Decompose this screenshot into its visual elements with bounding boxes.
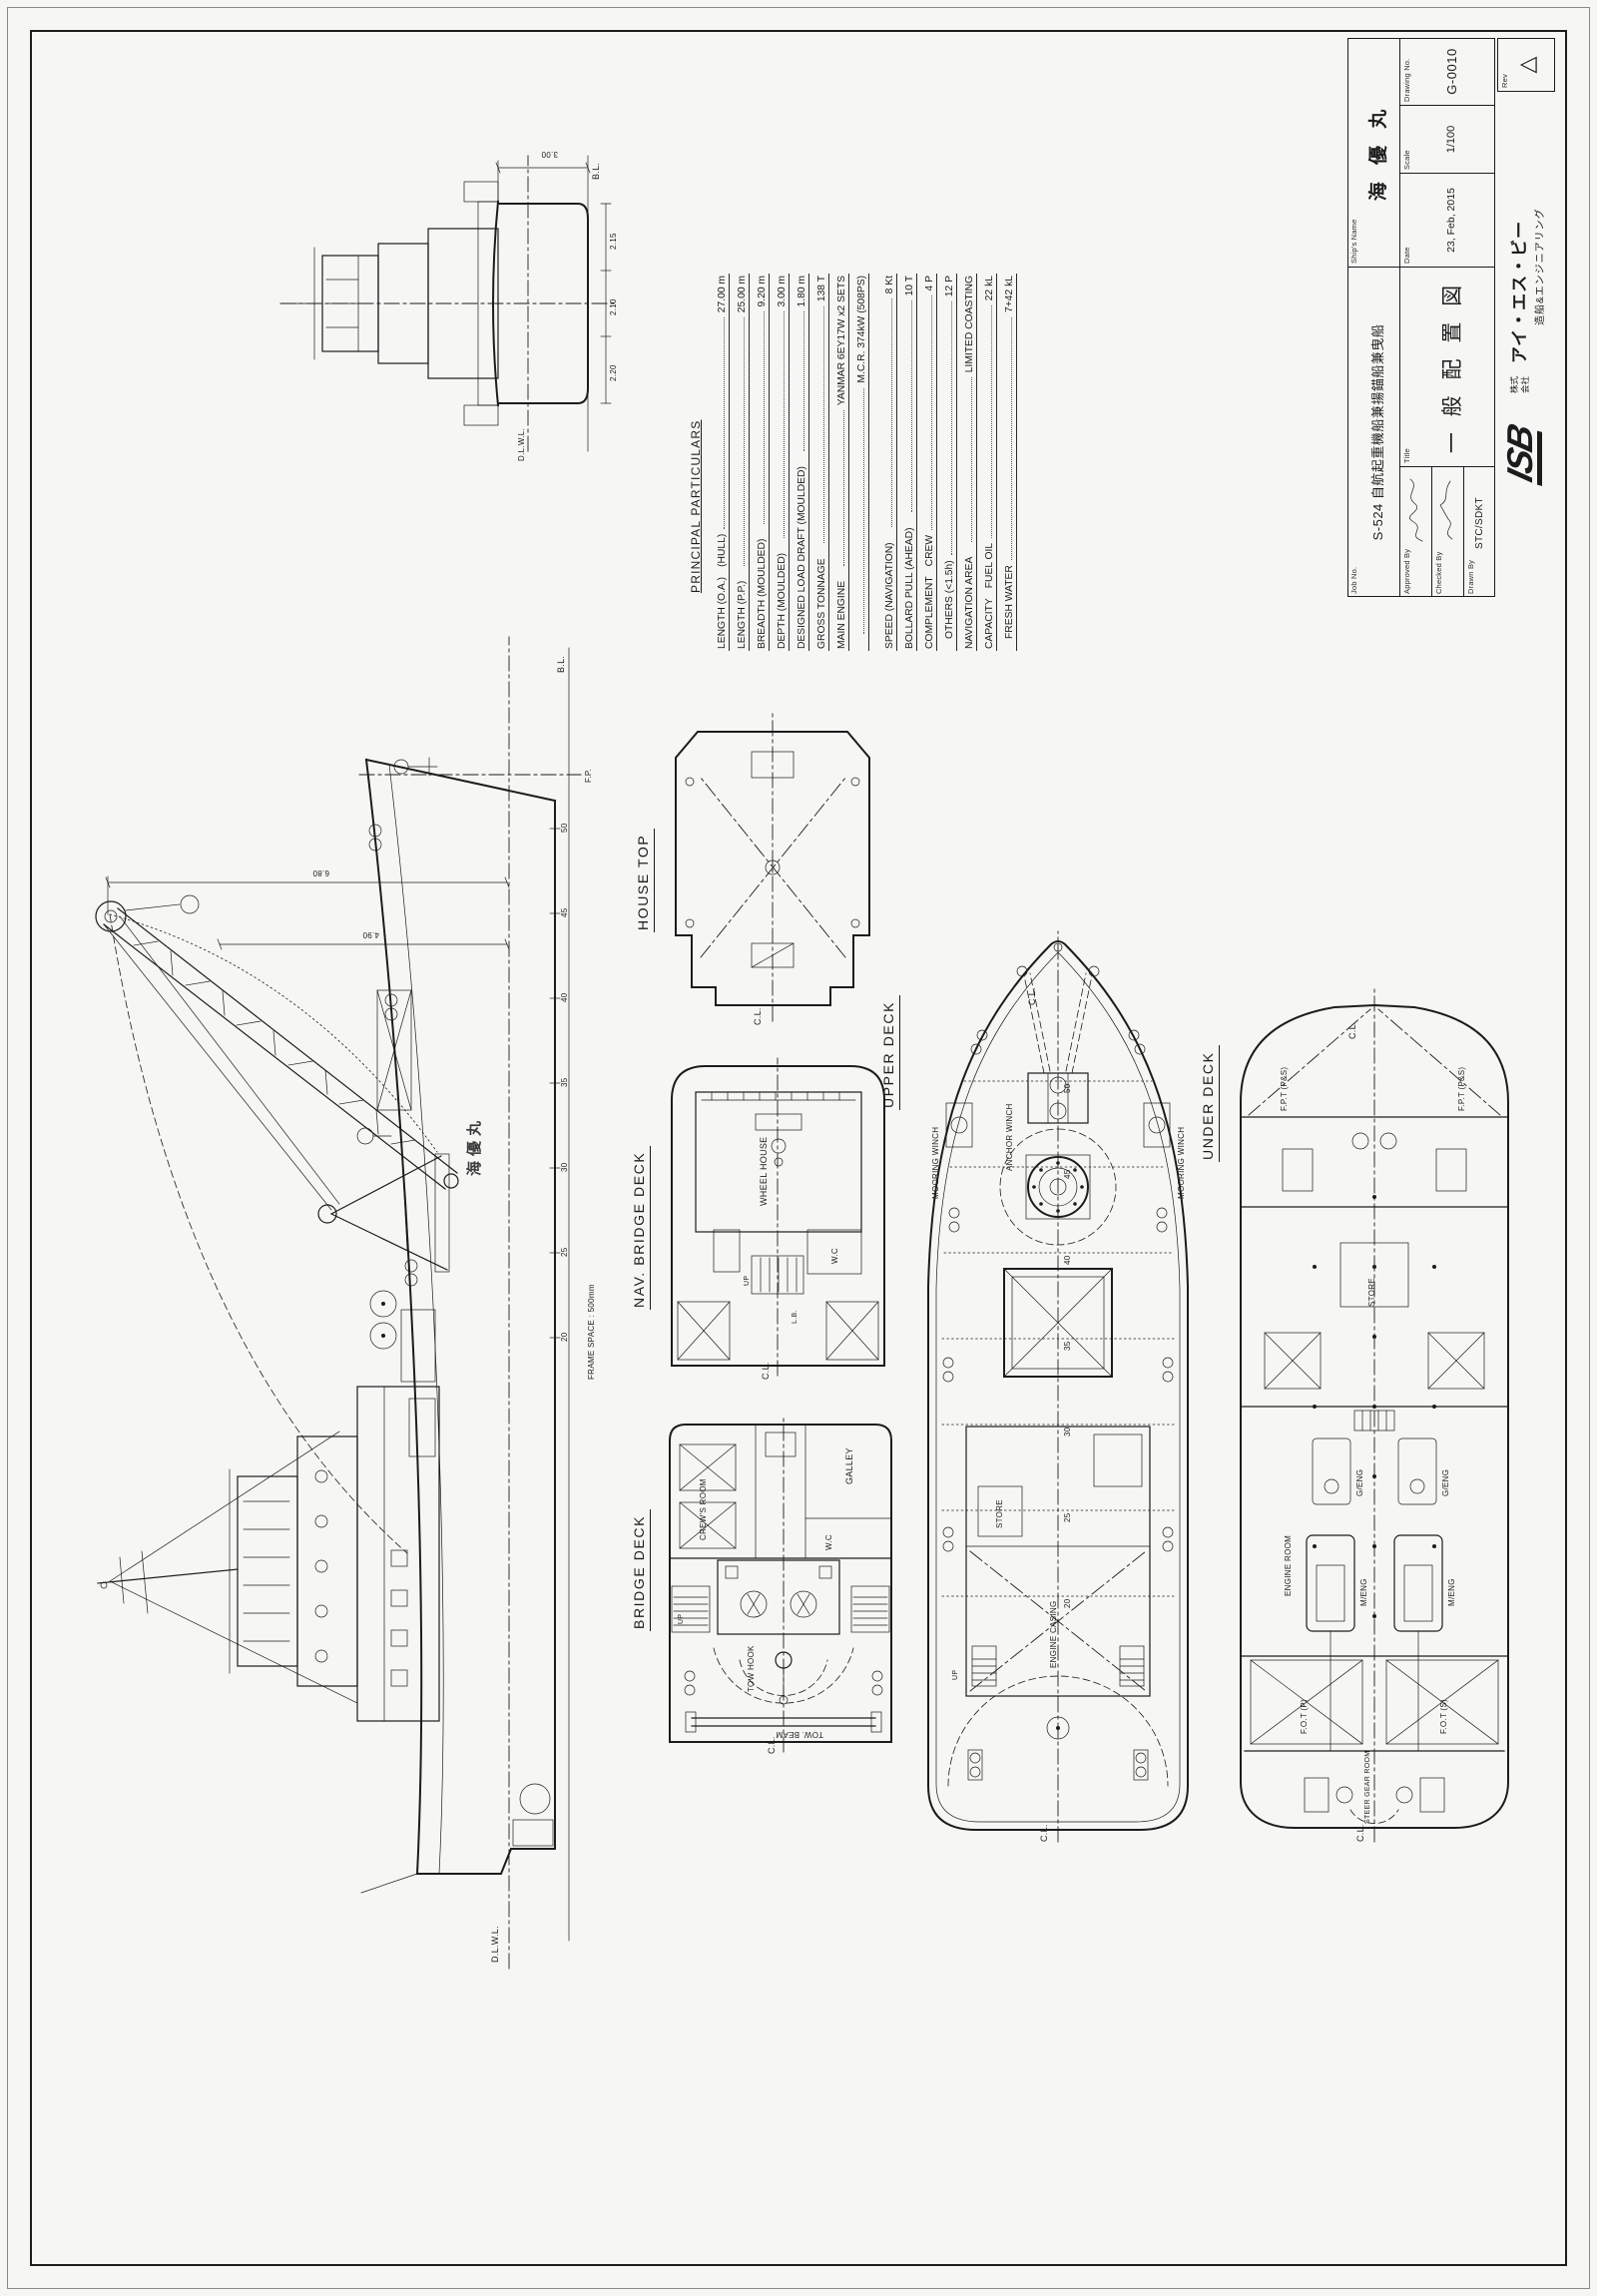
- particulars-row: NAVIGATION AREALIMITED COASTING: [957, 274, 977, 651]
- row-sub: CREW: [924, 535, 935, 566]
- row-value: 3.00 m: [777, 276, 788, 306]
- drawing-no-value: G-0010: [1409, 40, 1493, 103]
- engine-casing-label: ENGINE CASING: [1050, 1601, 1058, 1668]
- frame-number: 45: [561, 908, 569, 918]
- company-name: アイ・エス・ビー: [1505, 221, 1530, 363]
- row-label: DESIGNED LOAD DRAFT (MOULDED): [797, 466, 807, 649]
- checked-by-cell: Checked By: [1431, 467, 1463, 597]
- checked-signature: [1436, 475, 1460, 545]
- row-label: LENGTH (P.P.): [737, 581, 748, 649]
- frame-number: 50: [561, 824, 569, 834]
- bridge-deck-view: CREW'S ROOM GALLEY W.C TOW HOOK TOW. BEA…: [656, 1412, 905, 1756]
- row-value: 25.00 m: [737, 276, 748, 312]
- particulars-title: PRINCIPAL PARTICULARS: [689, 274, 703, 593]
- row-value: 22 kL: [984, 276, 995, 300]
- frame-number: 25: [1064, 1513, 1072, 1523]
- under-deck-view: STEER GEAR ROOM F.O.T (P) F.O.T (S) ENGI…: [1225, 977, 1524, 1846]
- row-label: CAPACITY: [984, 598, 995, 649]
- drawing-sheet: D.L.W.L. B.L. 海優丸 20 25 30 35 40 45 50 F…: [0, 0, 1597, 2296]
- under-deck-drawing: [1225, 977, 1524, 1846]
- approved-by-label: Approved By: [1402, 549, 1411, 594]
- leader-dots: [951, 301, 952, 555]
- row-value: M.C.R. 374kW (508PS): [856, 276, 867, 383]
- leader-dots: [744, 317, 745, 565]
- drawing-title: 一 般 配 置 図: [1409, 270, 1493, 464]
- leader-dots: [931, 295, 932, 529]
- dlwl-label: D.L.W.L.: [518, 428, 526, 461]
- particulars-row: FRESH WATER7+42 kL: [997, 274, 1017, 651]
- row-label: LENGTH (O.A.): [717, 577, 728, 649]
- row-label: BOLLARD PULL (AHEAD): [904, 527, 915, 649]
- stair-up-label: UP: [952, 1670, 959, 1680]
- frame-number: 20: [561, 1333, 569, 1343]
- frame-number: 40: [561, 993, 569, 1003]
- centerline-label: C.L.: [1028, 987, 1037, 1005]
- row-label: NAVIGATION AREA: [964, 557, 975, 649]
- particulars-row: DEPTH (MOULDED)3.00 m: [770, 274, 790, 651]
- row-value: 4 P: [924, 276, 935, 290]
- leader-dots: [911, 300, 912, 512]
- anchor-winch-label: ANCHOR WINCH: [1006, 1103, 1014, 1171]
- fore-peak-tank-label: F.P.T (P&S): [1458, 1067, 1466, 1111]
- particulars-row: M.C.R. 374kW (508PS): [849, 274, 869, 651]
- particulars-row: MAIN ENGINEYANMAR 6EY17W x2 SETS: [829, 274, 849, 651]
- particulars-row: BOLLARD PULL (AHEAD)10 T: [897, 274, 917, 651]
- profile-elevation-view: D.L.W.L. B.L. 海優丸 20 25 30 35 40 45 50 F…: [40, 633, 617, 1971]
- hull-ship-name: 海優丸: [467, 1116, 482, 1176]
- leader-dots: [891, 298, 892, 527]
- leader-dots: [1011, 317, 1012, 560]
- leader-dots: [784, 311, 785, 537]
- frame-number: 20: [1064, 1599, 1072, 1609]
- galley-label: GALLEY: [845, 1447, 854, 1484]
- rotated-drawing-canvas: D.L.W.L. B.L. 海優丸 20 25 30 35 40 45 50 F…: [32, 32, 1561, 2260]
- rev-triangle-mark: △: [1514, 39, 1540, 91]
- row-value: 12 P: [944, 276, 955, 296]
- life-buoy-label: L.B.: [792, 1310, 798, 1324]
- drawn-by-cell: Drawn By STC/SDKT: [1463, 467, 1495, 597]
- dimension-2-10: 2.10: [610, 298, 618, 315]
- row-label: DEPTH (MOULDED): [777, 553, 788, 649]
- row-value: 27.00 m: [717, 276, 728, 312]
- main-engine-label: M/ENG: [1360, 1578, 1368, 1606]
- dimension-4-90: 4.90: [362, 930, 379, 938]
- particulars-row: DESIGNED LOAD DRAFT (MOULDED)1.80 m: [790, 274, 809, 651]
- approved-by-cell: Approved By: [1399, 467, 1431, 597]
- stair-up-label: UP: [678, 1614, 685, 1624]
- particulars-row: CAPACITYFUEL OIL22 kL: [977, 274, 997, 651]
- particulars-row: GROSS TONNAGE138 T: [809, 274, 829, 651]
- dimension-2-15: 2.15: [610, 233, 618, 250]
- leader-dots: [803, 311, 804, 451]
- bridge-deck-drawing: [656, 1412, 905, 1756]
- gen-engine-label: G/ENG: [1442, 1469, 1450, 1496]
- mooring-winch-label: MOORING WINCH: [1178, 1127, 1186, 1199]
- gen-engine-label: G/ENG: [1356, 1469, 1364, 1496]
- dlwl-label: D.L.W.L.: [491, 1926, 500, 1963]
- mooring-winch-label: MOORING WINCH: [932, 1127, 940, 1199]
- row-value: YANMAR 6EY17W x2 SETS: [836, 276, 847, 405]
- row-label: GROSS TONNAGE: [816, 558, 827, 649]
- checked-by-label: Checked By: [1434, 552, 1443, 594]
- upper-deck-drawing: [908, 927, 1208, 1846]
- drawn-by-label: Drawn By: [1466, 560, 1475, 594]
- frame-number: 30: [1064, 1428, 1072, 1437]
- row-value: 138 T: [816, 276, 827, 301]
- row-value: 1.80 m: [797, 276, 807, 306]
- frame-space-note: FRAME SPACE : 500mm: [588, 1284, 596, 1380]
- fuel-oil-tank-stbd-label: F.O.T (S): [1440, 1699, 1448, 1734]
- centerline-label: C.L.: [1040, 1824, 1049, 1842]
- profile-elevation-drawing: [40, 633, 617, 1971]
- baseline-label: B.L.: [557, 656, 566, 673]
- wheel-house-label: WHEEL HOUSE: [760, 1137, 769, 1206]
- isb-logo: ISB: [1503, 422, 1542, 486]
- dimension-6-80: 6.80: [312, 868, 329, 876]
- row-label: SPEED (NAVIGATION): [884, 542, 895, 649]
- row-value: 7+42 kL: [1004, 276, 1015, 312]
- date-cell: Date 23, Feb, 2015: [1399, 174, 1495, 268]
- main-engine-label: M/ENG: [1448, 1578, 1456, 1606]
- particulars-row: BREADTH (MOULDED)9.20 m: [750, 274, 770, 651]
- rev-label: Rev: [1500, 74, 1509, 88]
- leader-dots: [823, 306, 824, 543]
- leader-dots: [991, 305, 992, 538]
- rev-cell: Rev △: [1497, 38, 1555, 92]
- dimension-2-20: 2.20: [610, 364, 618, 381]
- steer-gear-room-label: STEER GEAR ROOM: [1364, 1751, 1371, 1824]
- frame-number: 45: [1064, 1170, 1072, 1180]
- bridge-deck-label: BRIDGE DECK: [631, 1509, 651, 1631]
- frame-number: 35: [561, 1078, 569, 1088]
- row-sub: FUEL OIL: [984, 543, 995, 588]
- title-block: Job No. S-524 自航起重機船兼揚錨船兼曳船 Ship's Name …: [1347, 38, 1559, 597]
- frame-number: 40: [1064, 1256, 1072, 1266]
- drawn-by-value: STC/SDKT: [1475, 497, 1485, 549]
- principal-particulars-table: PRINCIPAL PARTICULARS LENGTH (O.A.)(HULL…: [689, 274, 1017, 651]
- tow-hook-label: TOW HOOK: [748, 1645, 756, 1692]
- fore-perpendicular-label: F.P.: [585, 769, 593, 783]
- dimension-3-00: 3.00: [541, 150, 558, 158]
- upper-deck-view: ANCHOR WINCH MOORING WINCH MOORING WINCH…: [908, 927, 1208, 1846]
- row-sub: FRESH WATER: [1004, 565, 1015, 639]
- company-kabushiki: 株式 会社: [1509, 376, 1530, 393]
- drawing-no-cell: Drawing No. G-0010: [1399, 38, 1495, 106]
- frame-number: 30: [561, 1163, 569, 1173]
- row-sub: OTHERS (<1.5h): [944, 560, 955, 639]
- row-sub: (HULL): [717, 534, 728, 567]
- particulars-row: COMPLEMENTCREW4 P: [917, 274, 937, 651]
- job-no-cell: Job No. S-524 自航起重機船兼揚錨船兼曳船: [1347, 268, 1399, 597]
- row-label: COMPLEMENT: [924, 576, 935, 649]
- nav-bridge-deck-view: WHEEL HOUSE W.C UP L.B. C.L.: [656, 1052, 900, 1382]
- section-drawing: [266, 144, 626, 463]
- row-label: BREADTH (MOULDED): [757, 539, 768, 649]
- crews-room-label: CREW'S ROOM: [700, 1478, 708, 1540]
- leader-dots: [843, 410, 844, 566]
- company-kk1: 株式: [1509, 376, 1520, 393]
- row-label: MAIN ENGINE: [836, 581, 847, 649]
- leader-dots: [971, 377, 972, 541]
- row-value: 10 T: [904, 276, 915, 295]
- job-no-value: S-524 自航起重機船兼揚錨船兼曳船: [1356, 270, 1397, 595]
- leader-dots: [764, 311, 765, 523]
- nav-bridge-deck-label: NAV. BRIDGE DECK: [631, 1146, 651, 1310]
- centerline-label: C.L.: [768, 1736, 777, 1754]
- baseline-label: B.L.: [592, 163, 601, 180]
- store-label: STORE: [1368, 1278, 1376, 1307]
- date-value: 23, Feb, 2015: [1409, 176, 1493, 265]
- section-view: D.L.W.L. B.L. 3.00 2.20 2.10 2.15: [266, 144, 626, 463]
- particulars-row: LENGTH (O.A.)(HULL)27.00 m: [710, 274, 730, 651]
- leader-dots: [863, 388, 864, 634]
- wc-label: W.C: [825, 1534, 833, 1550]
- company-subtitle: 造船&エンジニアリング: [1531, 208, 1546, 325]
- row-value: 9.20 m: [757, 276, 768, 306]
- leader-dots: [724, 317, 725, 529]
- centerline-label: C.L.: [762, 1362, 771, 1380]
- approved-signature: [1404, 475, 1428, 545]
- ship-name-cell: Ship's Name 海 優 丸: [1347, 38, 1399, 268]
- nav-bridge-deck-drawing: [656, 1052, 900, 1382]
- house-top-drawing: [656, 708, 890, 1027]
- frame-number: 50: [1064, 1084, 1072, 1094]
- title-cell: Title 一 般 配 置 図: [1399, 268, 1495, 467]
- company-kk2: 会社: [1520, 376, 1531, 393]
- particulars-row: LENGTH (P.P.)25.00 m: [730, 274, 750, 651]
- row-value: LIMITED COASTING: [964, 276, 975, 372]
- frame-number: 25: [561, 1248, 569, 1258]
- wc-label: W.C: [831, 1248, 839, 1264]
- house-top-label: HOUSE TOP: [635, 829, 655, 932]
- row-value: 8 Kt: [884, 276, 895, 293]
- tow-beam-label: TOW. BEAM: [776, 1730, 823, 1738]
- centerline-label: C.L.: [1356, 1824, 1365, 1842]
- centerline-label: C.L.: [754, 1007, 763, 1025]
- scale-value: 1/100: [1409, 108, 1493, 171]
- scale-cell: Scale 1/100: [1399, 106, 1495, 174]
- ship-name-value: 海 優 丸: [1356, 40, 1397, 265]
- house-top-view: C.L.: [656, 708, 890, 1027]
- particulars-row: SPEED (NAVIGATION)8 Kt: [877, 274, 897, 651]
- store-label: STORE: [996, 1499, 1004, 1528]
- fore-peak-tank-label: F.P.T (P&S): [1281, 1067, 1289, 1111]
- engine-room-label: ENGINE ROOM: [1285, 1535, 1293, 1596]
- frame-number: 35: [1064, 1342, 1072, 1352]
- centerline-label: C.L.: [1348, 1021, 1357, 1039]
- particulars-row: OTHERS (<1.5h)12 P: [937, 274, 957, 651]
- stair-up-label: UP: [744, 1276, 751, 1286]
- fuel-oil-tank-port-label: F.O.T (P): [1301, 1699, 1309, 1734]
